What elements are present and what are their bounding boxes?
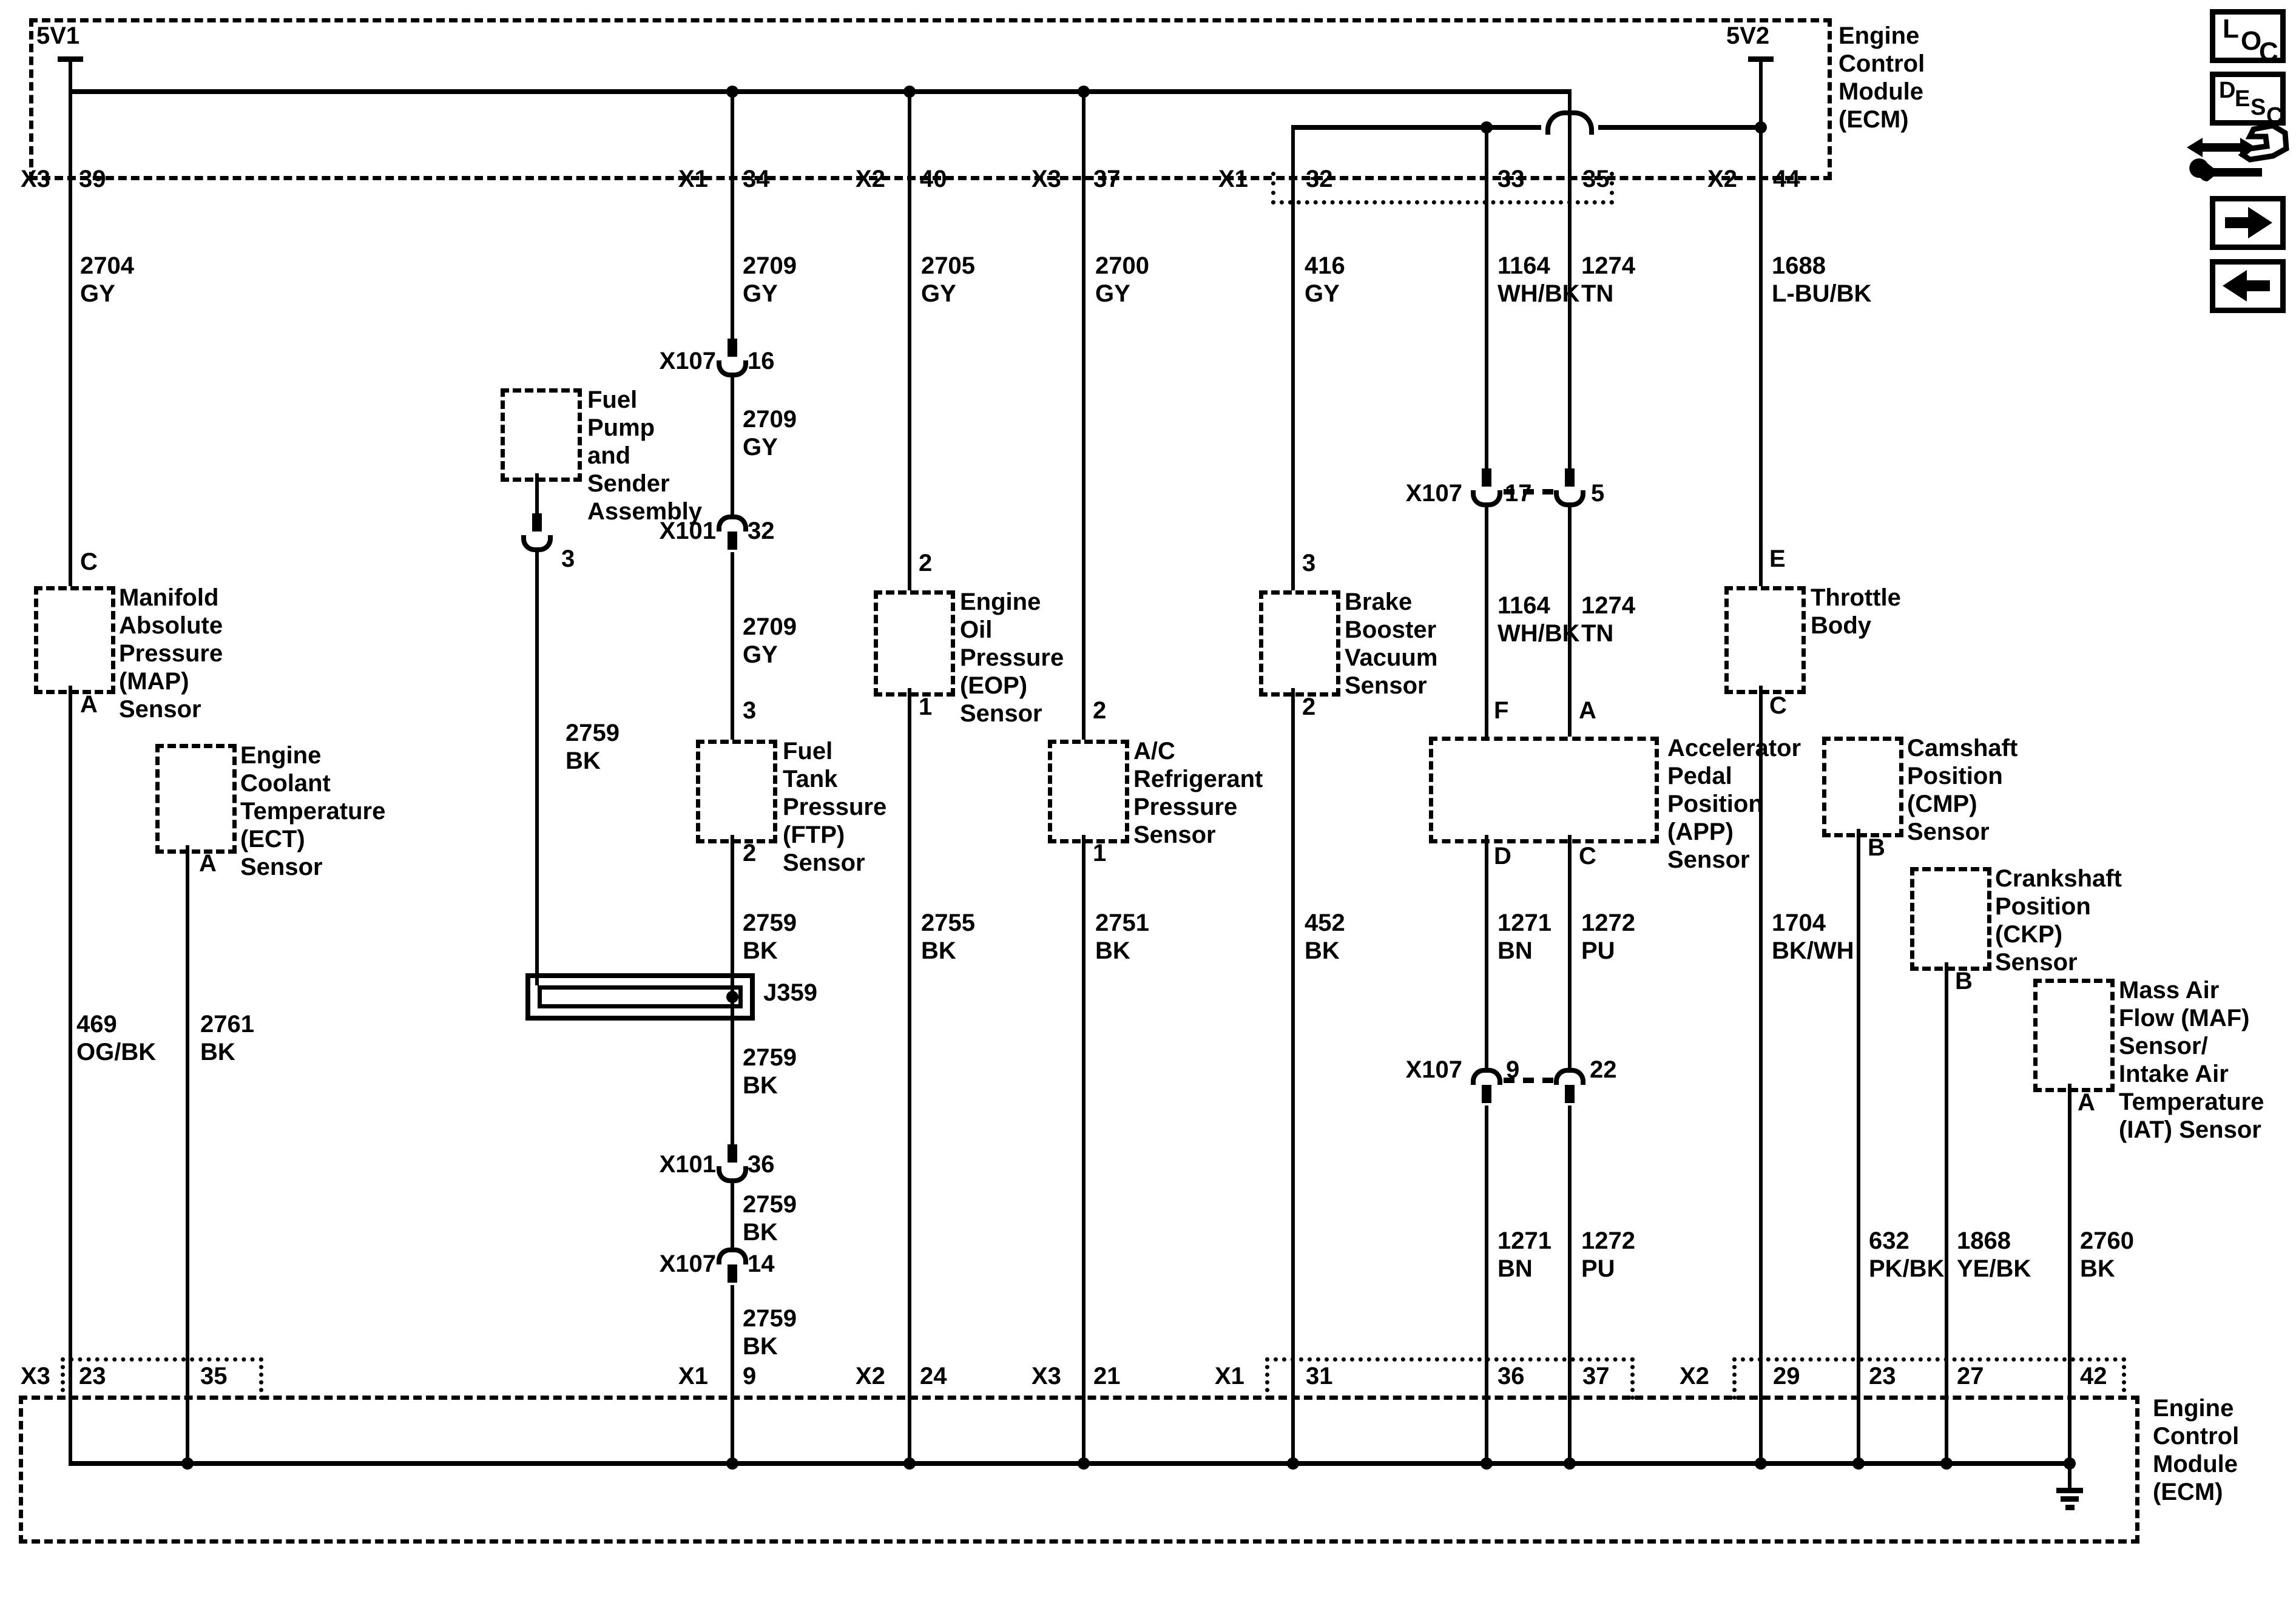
desc-letter-e: E	[2235, 86, 2250, 112]
cmp-sensor-label: Camshaft Position (CMP) Sensor	[1907, 734, 2017, 846]
wire-2755-label: 2755 BK	[921, 909, 975, 965]
ac-sensor-label: A/C Refrigerant Pressure Sensor	[1133, 737, 1263, 849]
pin-x2-44-conn: X2	[1707, 165, 1737, 193]
ac-sensor-box	[1048, 740, 1129, 843]
pin-x2-40-conn: X2	[856, 165, 885, 193]
pin-x1-32-conn: X1	[1218, 165, 1248, 193]
ftp-sensor-label: Fuel Tank Pressure (FTP) Sensor	[783, 737, 886, 877]
brake-pin-3: 3	[1302, 549, 1315, 577]
loc-button[interactable]: L O C	[2210, 9, 2286, 63]
wire-1274-label-2: 1274 TN	[1581, 592, 1635, 647]
wire-1272-label-2: 1272 PU	[1581, 1227, 1635, 1283]
pin-x3-23-conn: X3	[21, 1362, 50, 1390]
prev-page-button[interactable]	[2210, 259, 2286, 313]
fuel-pump-connector	[521, 535, 553, 552]
map-sensor-box	[34, 586, 115, 694]
pin-x2-42: 42	[2080, 1362, 2107, 1390]
loc-letter-l: L	[2223, 16, 2239, 42]
ect-pin-a: A	[199, 849, 217, 877]
x107-pin-16: 16	[748, 347, 775, 375]
pin-x1-9: 9	[743, 1362, 756, 1390]
app-sensor-label: Accelerator Pedal Position (APP) Sensor	[1667, 734, 1801, 874]
map-pin-a: A	[80, 690, 98, 718]
ckp-sensor-box	[1910, 867, 1991, 971]
wire-1271-label-2: 1271 BN	[1497, 1227, 1551, 1283]
pin-x3-39: 39	[79, 165, 106, 193]
bus-5v2-right	[1598, 125, 1761, 130]
wire-2759-label-b: 2759 BK	[743, 909, 797, 965]
ftp-pin-2: 2	[743, 839, 756, 867]
ecm-bottom-label: Engine Control Module (ECM)	[2153, 1394, 2239, 1506]
wire-1272-label-1: 1272 PU	[1581, 909, 1635, 965]
x101-pin-32: 32	[748, 517, 775, 545]
wire-1274-label-1: 1274 TN	[1581, 252, 1635, 308]
pin-x3-23: 23	[79, 1362, 106, 1390]
ect-sensor-label: Engine Coolant Temperature (ECT) Sensor	[240, 741, 385, 881]
fuel-pump-label: Fuel Pump and Sender Assembly	[587, 386, 702, 525]
wire-2751-label: 2751 BK	[1095, 909, 1149, 965]
wire-2705-label: 2705 GY	[921, 252, 975, 308]
app-pin-a: A	[1579, 697, 1596, 724]
pin-x3-21: 21	[1093, 1362, 1121, 1390]
desc-button[interactable]: D E S C	[2210, 72, 2286, 126]
x107-1705-conn-label: X107	[1365, 479, 1462, 507]
ac-pin-1: 1	[1093, 839, 1106, 867]
pin-x3-39-conn: X3	[21, 165, 50, 193]
x107-14-conn-label: X107	[619, 1250, 716, 1278]
app-pin-c: C	[1579, 842, 1596, 870]
ftp-pin-3: 3	[743, 697, 756, 724]
pin-x1-36: 36	[1497, 1362, 1525, 1390]
pin-x3-37-conn: X3	[1032, 165, 1061, 193]
wire-416-label: 416 GY	[1305, 252, 1345, 308]
wiring-diagram-canvas: Engine Control Module (ECM) Engine Contr…	[0, 0, 2296, 1617]
ecm-top-box	[29, 18, 1832, 180]
pin-x2-29-conn: X2	[1680, 1362, 1709, 1390]
ecm-bottom-box	[19, 1396, 2139, 1544]
x107-16-connector	[717, 360, 748, 377]
app-pin-f: F	[1494, 697, 1508, 724]
pin-x2-29: 29	[1773, 1362, 1800, 1390]
wire-1868-label: 1868 YE/BK	[1957, 1227, 2031, 1283]
x101-pin-36: 36	[748, 1150, 775, 1178]
x107-9-connector	[1471, 1068, 1502, 1085]
wire-2709-label-1: 2709 GY	[743, 252, 797, 308]
brake-pin-2: 2	[1302, 693, 1315, 721]
desc-letter-d: D	[2219, 77, 2235, 104]
ckp-pin-b: B	[1955, 967, 1973, 995]
wire-632-label: 632 PK/BK	[1869, 1227, 1944, 1283]
x107-14-connector	[717, 1247, 748, 1264]
pin-x1-31-conn: X1	[1215, 1362, 1244, 1390]
loc-letter-c: C	[2259, 39, 2278, 66]
exchange-wrench-icon[interactable]	[2182, 124, 2291, 191]
next-page-button[interactable]	[2210, 196, 2286, 250]
x107-22-connector	[1554, 1068, 1585, 1085]
maf-sensor-box	[2033, 979, 2115, 1092]
left-arrow-icon	[2246, 280, 2270, 291]
eop-pin-2: 2	[919, 549, 932, 577]
ecm-top-label: Engine Control Module (ECM)	[1838, 22, 1925, 133]
throttle-body-box	[1724, 586, 1806, 694]
x101-32-conn-label: X101	[619, 517, 716, 545]
eop-pin-1: 1	[919, 693, 932, 721]
x107-pin-22: 22	[1590, 1056, 1617, 1084]
fuel-pump-box	[501, 388, 582, 482]
right-arrow-icon	[2225, 217, 2249, 228]
throttle-pin-e: E	[1769, 545, 1786, 573]
maf-pin-a: A	[2078, 1089, 2095, 1116]
eop-sensor-box	[874, 590, 955, 697]
pin-x2-24: 24	[920, 1362, 947, 1390]
bus-ground	[69, 1461, 2070, 1466]
fuel-pump-pin-3: 3	[561, 545, 575, 573]
ckp-sensor-label: Crankshaft Position (CKP) Sensor	[1995, 865, 2122, 976]
wire-452-label: 452 BK	[1305, 909, 1345, 965]
x107-5-connector	[1554, 490, 1585, 507]
x101-32-connector	[717, 515, 748, 532]
pin-x3-21-conn: X3	[1032, 1362, 1061, 1390]
eop-sensor-label: Engine Oil Pressure (EOP) Sensor	[960, 588, 1064, 727]
wire-1688-label: 1688 L-BU/BK	[1772, 252, 1871, 308]
wire-1704-label: 1704 BK/WH	[1772, 909, 1854, 965]
wire-2759-label-a: 2759 BK	[566, 719, 620, 775]
brake-sensor-box	[1259, 590, 1340, 697]
throttle-body-label: Throttle Body	[1811, 584, 1901, 640]
x107-ganged-link-bottom	[1504, 1078, 1553, 1083]
x101-36-conn-label: X101	[619, 1150, 716, 1178]
wire-2760-label: 2760 BK	[2080, 1227, 2134, 1283]
pin-x2-23: 23	[1869, 1362, 1896, 1390]
throttle-pin-c: C	[1769, 692, 1787, 720]
x107-16-conn-label: X107	[619, 347, 716, 375]
wire-469-label: 469 OG/BK	[76, 1010, 156, 1066]
bus-5v2-left	[1291, 125, 1541, 130]
pin-x2-40: 40	[920, 165, 947, 193]
pin-x2-27: 27	[1957, 1362, 1984, 1390]
wire-2759-label-e: 2759 BK	[743, 1305, 797, 1360]
ground-icon	[2056, 1488, 2083, 1493]
wire-2704-label: 2704 GY	[80, 252, 134, 308]
x107-17-connector	[1471, 490, 1502, 507]
desc-letter-s: S	[2250, 94, 2266, 121]
brake-sensor-label: Brake Booster Vacuum Sensor	[1345, 588, 1437, 700]
j359-label: J359	[763, 979, 817, 1007]
ftp-sensor-box	[696, 740, 777, 843]
wire-2759-label-d: 2759 BK	[743, 1190, 797, 1246]
wire-2709-label-2: 2709 GY	[743, 405, 797, 461]
app-sensor-box	[1429, 737, 1659, 843]
x107-ganged-link-top	[1504, 489, 1553, 495]
rail-5v2-label: 5V2	[1726, 22, 1769, 50]
pin-x1-34: 34	[743, 165, 770, 193]
pin-x1-34-conn: X1	[678, 165, 708, 193]
wire-2759-label-c: 2759 BK	[743, 1044, 797, 1099]
wire-2709-label-3: 2709 GY	[743, 613, 797, 669]
x107-pin-5: 5	[1591, 479, 1604, 507]
pin-x2-24-conn: X2	[856, 1362, 885, 1390]
wire-1271-label-1: 1271 BN	[1497, 909, 1551, 965]
ect-sensor-box	[155, 744, 237, 854]
top-pin-group-box	[1271, 172, 1614, 204]
wire-2700-label: 2700 GY	[1095, 252, 1149, 308]
maf-sensor-label: Mass Air Flow (MAF) Sensor/ Intake Air T…	[2119, 976, 2264, 1144]
ac-pin-2: 2	[1093, 697, 1106, 724]
map-pin-c: C	[80, 548, 98, 576]
wire-2761-label: 2761 BK	[200, 1010, 254, 1066]
map-sensor-label: Manifold Absolute Pressure (MAP) Sensor	[119, 584, 223, 723]
x101-36-connector	[717, 1166, 748, 1183]
rail-5v1-label: 5V1	[36, 22, 79, 50]
pin-x1-37: 37	[1582, 1362, 1610, 1390]
pin-x3-35: 35	[200, 1362, 228, 1390]
cmp-sensor-box	[1822, 737, 1903, 837]
cmp-pin-b: B	[1868, 834, 1885, 862]
pin-x1-9-conn: X1	[678, 1362, 708, 1390]
app-pin-d: D	[1494, 842, 1511, 870]
x107-0922-conn-label: X107	[1365, 1056, 1462, 1084]
bus-5v1	[69, 89, 1572, 94]
pin-x1-31: 31	[1306, 1362, 1333, 1390]
pin-x3-37: 37	[1093, 165, 1121, 193]
x107-pin-14: 14	[748, 1250, 775, 1278]
pin-x2-44: 44	[1773, 165, 1800, 193]
